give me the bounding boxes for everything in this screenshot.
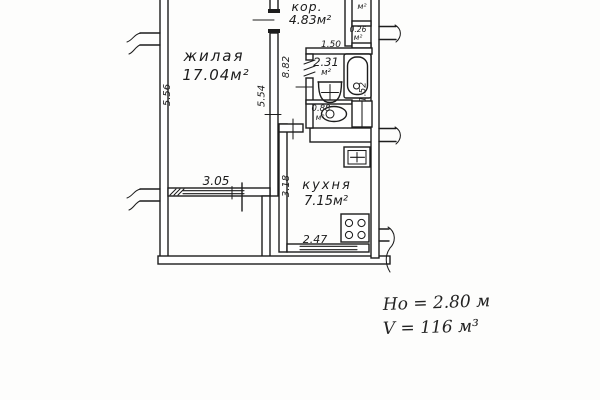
right-stub-middle [379,129,396,142]
wall-kitchen-top-left [279,124,303,132]
living-room-area: 17.04м² [182,66,249,84]
handwritten-notes: Hо = 2.80 м V = 116 м³ [381,291,490,339]
dim-window: 3.05 [203,174,230,188]
break-hook [127,33,141,54]
dim-kitchen-depth: 3.18 [281,175,292,197]
dim-bath-width: 1.50 [321,40,341,50]
kitchen-sink-icon [344,147,370,167]
note-ceiling-height: Hо = 2.80 м [381,291,490,315]
wall-right [371,0,379,258]
wall-corridor-bottom [310,128,372,142]
bath-unit: м² [321,68,331,78]
kitchen-area: 7.15м² [304,194,348,209]
door-jamb [268,9,280,13]
scanned-floor-plan-page: жилая 17.04м² кор. 4.83м² кухня 7.15м² 2… [0,0,600,400]
wall-closet-bottom [352,43,371,48]
right-stub-bottom [379,229,389,241]
kitchen-name: кухня [302,178,352,193]
wall-kitchen-bottom [287,244,369,252]
living-room-name: жилая [182,47,244,65]
dim-kitchen-width: 2.47 [303,233,328,246]
left-stub-bottom [140,189,160,201]
corridor-area: 4.83м² [289,12,331,27]
right-stub-top [379,27,396,40]
dim-living-wall: 5.54 [257,85,268,107]
wall-pier [262,196,270,258]
dim-left-wall: 5.56 [162,84,173,106]
left-stub-top [140,33,160,45]
wall-closet-left [345,0,352,46]
stove-icon [341,214,369,242]
floor-plan: жилая 17.04м² кор. 4.83м² кухня 7.15м² 2… [0,0,600,400]
dim-bath-depth: 1.52 [359,82,369,102]
cabinet-icon [352,101,372,127]
closet-unit: м² [357,2,367,11]
wall-left [160,0,168,258]
break-hook [127,189,141,210]
dim-hall: 8.82 [281,56,292,78]
door-jamb [268,29,280,33]
break-hook [386,227,394,272]
wall-bottom [158,256,390,264]
bath-area: 2.31 [313,55,339,69]
wc-unit: м² [316,113,325,122]
note-volume: V = 116 м³ [383,316,480,339]
wall-bath-left-stub [306,54,313,60]
pantry-unit: м² [354,33,363,42]
